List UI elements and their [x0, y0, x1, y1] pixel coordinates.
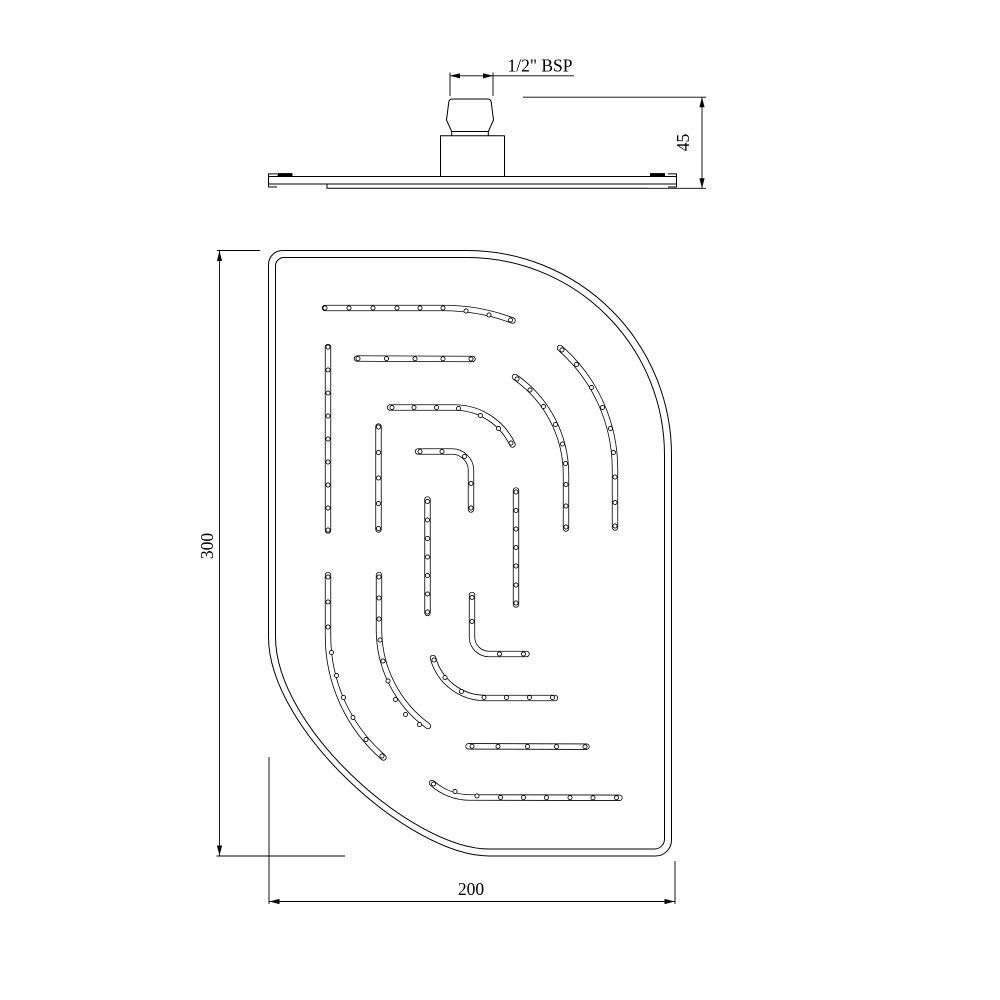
spray-hole	[364, 737, 368, 741]
spray-hole	[514, 545, 518, 549]
inlet-base-profile	[441, 136, 505, 177]
height45-arrow-bottom	[699, 178, 704, 188]
spray-hole	[326, 506, 330, 510]
spray-hole	[376, 476, 380, 480]
spray-hole	[377, 617, 381, 621]
spray-hole	[613, 500, 617, 504]
spray-hole	[563, 461, 567, 465]
spray-hole	[329, 650, 333, 654]
spray-hole	[521, 652, 525, 656]
height45-label: 45	[673, 134, 693, 152]
spray-hole	[326, 625, 330, 629]
inlet-nut-profile	[447, 99, 494, 132]
spray-hole	[425, 555, 429, 559]
width200-arrow-left	[270, 899, 280, 904]
spray-slots	[323, 306, 620, 800]
spray-hole	[378, 638, 382, 642]
spray-hole	[371, 306, 375, 310]
spray-hole	[380, 754, 384, 758]
spray-hole	[440, 449, 444, 453]
showerhead-technical-drawing: 1/2" BSP 45 300 200	[0, 0, 1000, 1000]
spray-hole	[441, 306, 445, 310]
spray-hole	[432, 658, 436, 662]
spray-hole	[334, 673, 338, 677]
spray-hole	[441, 357, 445, 361]
spray-hole	[528, 388, 532, 392]
spray-hole	[425, 499, 429, 503]
width200-arrow-right	[665, 899, 675, 904]
height45-arrow-top	[699, 97, 704, 107]
bsp-arrow-right	[483, 73, 493, 78]
spray-hole	[431, 782, 435, 786]
height300-arrow-top	[217, 251, 222, 261]
spray-hole	[527, 695, 531, 699]
spray-hole	[611, 450, 615, 454]
spray-hole	[403, 712, 407, 716]
spray-hole	[326, 575, 330, 579]
bsp-arrow-left	[450, 73, 460, 78]
plate-right-end-cap	[668, 174, 677, 187]
spray-hole	[347, 306, 351, 310]
spray-slot-inner	[432, 783, 620, 798]
face-view: 300 200	[197, 251, 675, 905]
spray-hole	[560, 348, 564, 352]
spray-hole	[514, 564, 518, 568]
plate-profile-lines	[269, 177, 677, 185]
spray-hole	[574, 362, 578, 366]
spray-hole	[514, 490, 518, 494]
plate-right-tab	[650, 173, 665, 176]
spray-hole	[470, 595, 474, 599]
side-view: 1/2" BSP 45	[269, 56, 707, 189]
spray-hole	[356, 356, 360, 360]
plate-left-tab	[278, 173, 293, 176]
spray-hole	[470, 744, 474, 748]
spray-hole	[384, 357, 388, 361]
spray-hole	[425, 610, 429, 614]
spray-hole	[326, 414, 330, 418]
spray-hole	[564, 525, 568, 529]
spray-hole	[326, 345, 330, 349]
plate-recess-line	[327, 184, 648, 188]
spray-hole	[351, 715, 355, 719]
spray-hole	[418, 449, 422, 453]
thread-size-label: 1/2" BSP	[507, 56, 572, 76]
spray-hole	[589, 385, 593, 389]
spray-hole	[478, 413, 482, 417]
spray-hole	[541, 404, 545, 408]
spray-slot-outline	[390, 408, 513, 445]
spray-hole	[514, 583, 518, 587]
spray-slot-inner	[515, 377, 566, 529]
spray-hole	[376, 526, 380, 530]
plate-left-end-cap	[269, 174, 278, 187]
spray-hole	[487, 313, 491, 317]
spray-hole	[412, 405, 416, 409]
spray-hole	[514, 527, 518, 531]
spray-hole	[425, 592, 429, 596]
spray-slot-inner	[328, 575, 384, 758]
spray-hole	[462, 454, 466, 458]
spray-hole	[459, 689, 463, 693]
spray-hole	[326, 460, 330, 464]
drawing-canvas: 1/2" BSP 45 300 200	[0, 0, 1000, 1000]
spray-hole	[613, 475, 617, 479]
spray-hole	[377, 596, 381, 600]
spray-hole	[425, 573, 429, 577]
spray-hole	[425, 536, 429, 540]
spray-hole	[498, 795, 502, 799]
spray-hole	[413, 357, 417, 361]
spray-hole	[434, 405, 438, 409]
inlet-neck-lines	[452, 132, 489, 136]
spray-hole	[504, 695, 508, 699]
spray-hole	[497, 652, 501, 656]
spray-hole	[393, 697, 397, 701]
spray-hole	[608, 426, 612, 430]
spray-hole	[525, 744, 529, 748]
spray-slot-inner	[379, 575, 428, 726]
spray-hole	[564, 504, 568, 508]
spray-hole	[326, 391, 330, 395]
spray-hole	[544, 796, 548, 800]
spray-hole	[554, 745, 558, 749]
spray-slot-outline	[433, 658, 555, 698]
spray-hole	[521, 795, 525, 799]
spray-hole	[475, 794, 479, 798]
spray-hole	[386, 679, 390, 683]
spray-hole	[591, 796, 595, 800]
spray-hole	[568, 796, 572, 800]
spray-hole	[418, 306, 422, 310]
spray-hole	[390, 405, 394, 409]
spray-slot-inner	[433, 658, 555, 698]
spray-hole	[482, 695, 486, 699]
spray-slot-inner	[390, 408, 513, 445]
spray-hole	[443, 675, 447, 679]
spray-hole	[453, 789, 457, 793]
width200-label: 200	[458, 879, 485, 899]
spray-hole	[326, 368, 330, 372]
spray-hole	[496, 426, 500, 430]
spray-hole	[469, 506, 473, 510]
height300-label: 300	[197, 533, 217, 560]
spray-hole	[326, 483, 330, 487]
spray-hole	[395, 306, 399, 310]
spray-hole	[560, 442, 564, 446]
spray-hole	[509, 441, 513, 445]
spray-hole	[381, 659, 385, 663]
spray-hole	[326, 528, 330, 532]
spray-hole	[583, 745, 587, 749]
spray-hole	[514, 508, 518, 512]
spray-hole	[470, 619, 474, 623]
spray-hole	[417, 722, 421, 726]
spray-hole	[614, 796, 618, 800]
spray-hole	[326, 437, 330, 441]
spray-hole	[323, 306, 327, 310]
spray-hole	[341, 695, 345, 699]
spray-hole	[514, 601, 518, 605]
spray-hole	[496, 744, 500, 748]
spray-hole	[376, 501, 380, 505]
spray-hole	[456, 406, 460, 410]
spray-hole	[600, 405, 604, 409]
faceplate-outer-outline	[269, 251, 672, 857]
spray-hole	[553, 422, 557, 426]
faceplate-inner-outline	[276, 257, 665, 849]
spray-hole	[376, 450, 380, 454]
height300-arrow-bottom	[217, 846, 222, 856]
spray-hole	[613, 524, 617, 528]
spray-hole	[564, 482, 568, 486]
spray-hole	[515, 377, 519, 381]
spray-hole	[469, 481, 473, 485]
spray-hole	[469, 357, 473, 361]
height300-extension-lines	[217, 251, 346, 857]
spray-hole	[376, 425, 380, 429]
spray-hole	[425, 518, 429, 522]
spray-hole	[464, 309, 468, 313]
spray-hole	[508, 318, 512, 322]
spray-hole	[550, 695, 554, 699]
spray-hole	[326, 600, 330, 604]
spray-hole	[377, 575, 381, 579]
